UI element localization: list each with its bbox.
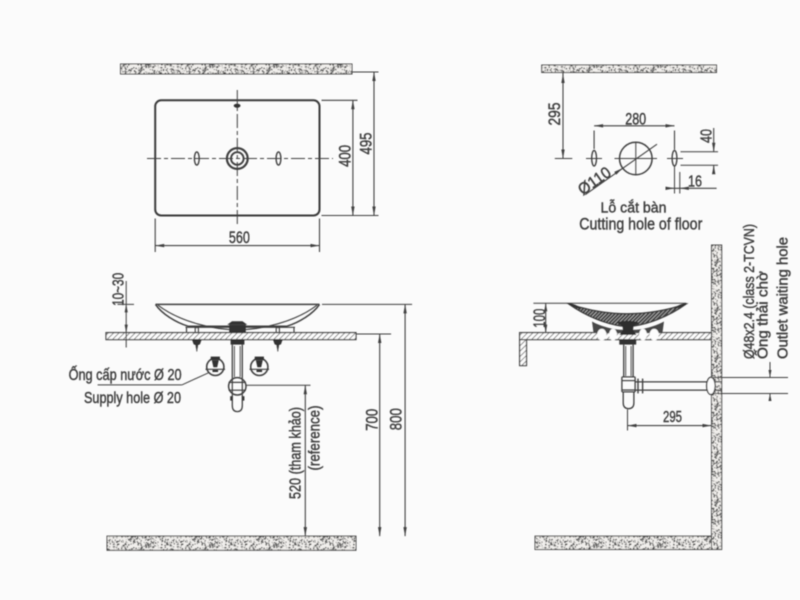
svg-text:520 (tham khảo): 520 (tham khảo) bbox=[287, 407, 304, 499]
svg-text:295: 295 bbox=[545, 103, 564, 126]
svg-text:800: 800 bbox=[386, 408, 405, 430]
svg-text:700: 700 bbox=[362, 409, 381, 431]
svg-text:(reference): (reference) bbox=[306, 406, 323, 471]
svg-text:Ống thải chờ: Ống thải chờ bbox=[753, 271, 771, 359]
svg-text:Supply hole Ø 20: Supply hole Ø 20 bbox=[84, 390, 181, 407]
svg-text:560: 560 bbox=[229, 228, 250, 247]
svg-text:40: 40 bbox=[699, 129, 716, 143]
svg-text:10~30: 10~30 bbox=[110, 273, 127, 306]
svg-text:295: 295 bbox=[663, 409, 682, 426]
svg-text:400: 400 bbox=[336, 145, 355, 167]
svg-text:Cutting hole of floor: Cutting hole of floor bbox=[579, 215, 702, 233]
svg-text:Ống cấp nước Ø 20: Ống cấp nước Ø 20 bbox=[69, 366, 182, 384]
svg-text:Outlet waiting hole: Outlet waiting hole bbox=[775, 237, 792, 359]
svg-text:100: 100 bbox=[531, 309, 549, 328]
svg-text:495: 495 bbox=[356, 133, 375, 155]
svg-text:280: 280 bbox=[625, 110, 646, 129]
svg-text:16: 16 bbox=[688, 173, 702, 190]
svg-text:Lỗ cắt bàn: Lỗ cắt bàn bbox=[601, 200, 667, 217]
